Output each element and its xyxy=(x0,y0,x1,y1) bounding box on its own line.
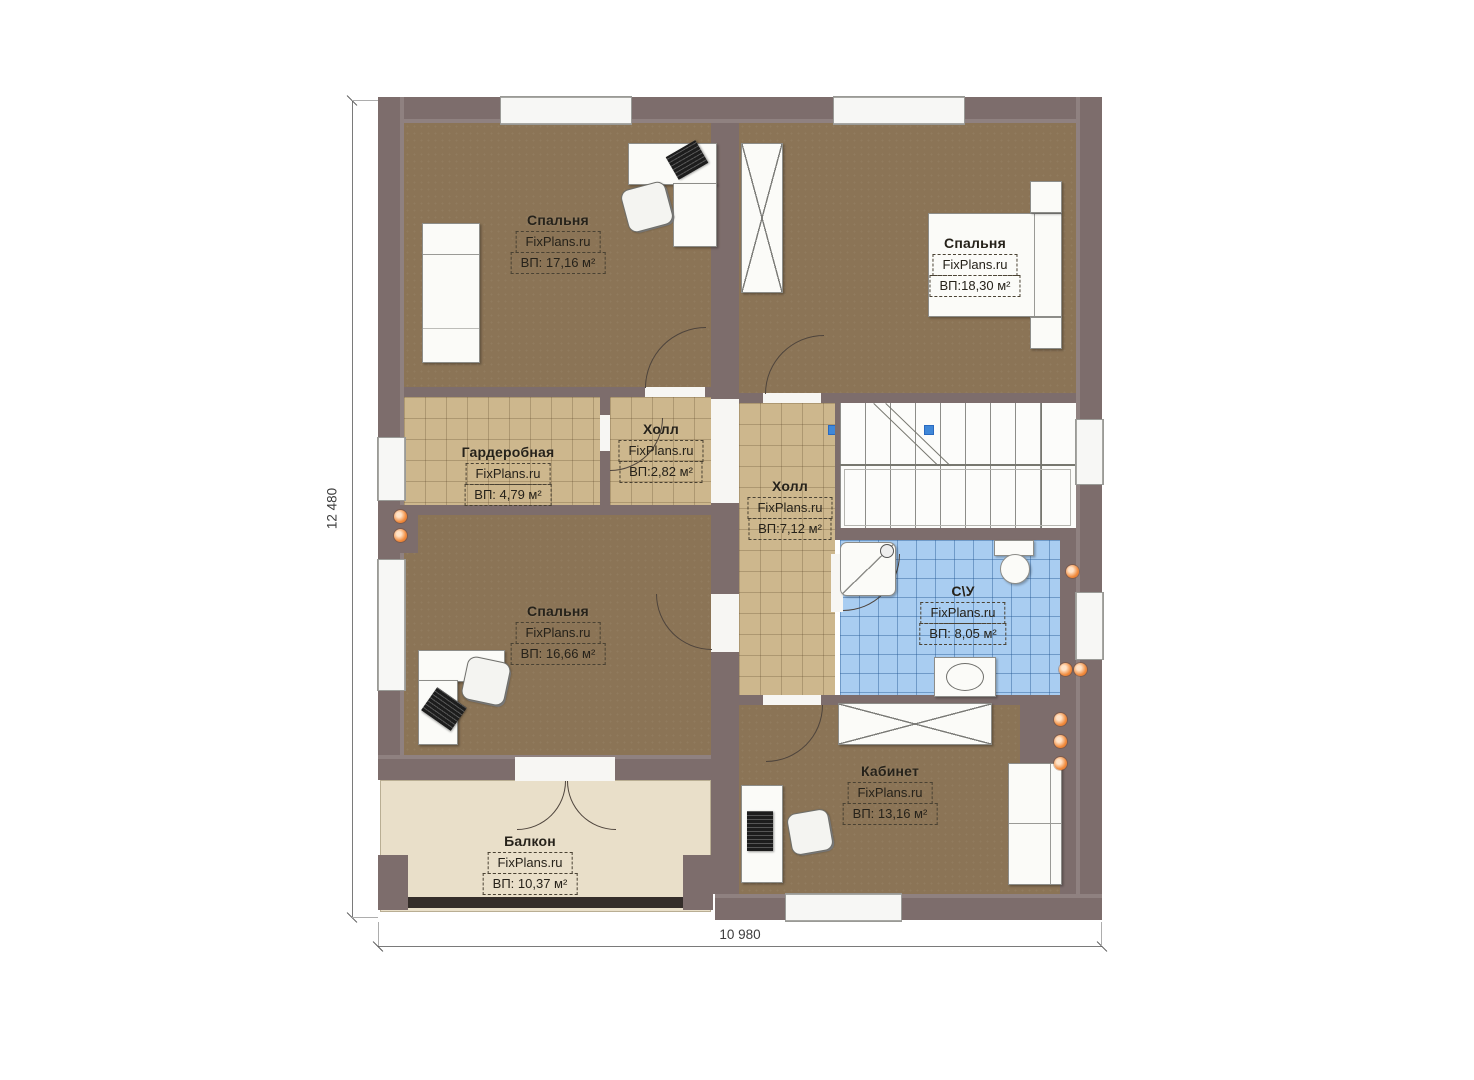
dimension-extension xyxy=(352,917,378,918)
room-site: FixPlans.ru xyxy=(920,602,1005,624)
room-name: Гардеробная xyxy=(462,444,555,460)
room-name: С\У xyxy=(951,583,974,599)
room-name: Холл xyxy=(643,421,679,437)
dimension-height-label: 12 480 xyxy=(325,469,340,549)
sofa xyxy=(1008,763,1062,885)
dimension-width-label: 10 980 xyxy=(675,927,805,942)
room-hall-center-floor xyxy=(739,403,835,695)
bed xyxy=(422,223,480,363)
radiator-dot xyxy=(1054,713,1067,726)
room-area: ВП: 10,37 м² xyxy=(483,873,578,895)
radiator-dot xyxy=(394,529,407,542)
radiator-dot xyxy=(394,510,407,523)
stair-outline xyxy=(844,469,1071,526)
stair-landing-line xyxy=(840,464,1076,466)
dimension-line-horizontal xyxy=(378,946,1102,947)
wall-interior xyxy=(835,528,1076,540)
room-label-hall-center: Холл FixPlans.ru ВП:7,12 м² xyxy=(747,478,832,540)
window xyxy=(1075,592,1104,660)
sofa-back-line xyxy=(1050,764,1051,884)
wall-interior xyxy=(835,403,840,528)
shower-head-icon xyxy=(880,544,894,558)
wall-exterior-bottom-right xyxy=(715,894,1102,920)
room-name: Кабинет xyxy=(861,763,919,779)
nightstand xyxy=(1030,317,1062,349)
door-opening xyxy=(645,387,705,397)
sink-counter xyxy=(934,657,996,697)
balcony-edge xyxy=(394,897,696,908)
radiator-dot xyxy=(1066,565,1079,578)
door-opening xyxy=(763,393,821,403)
wall-exterior-top xyxy=(378,97,1102,123)
room-label-balcony: Балкон FixPlans.ru ВП: 10,37 м² xyxy=(483,833,578,895)
toilet-bowl xyxy=(1000,554,1030,584)
room-label-bedroom-bottom-left: Спальня FixPlans.ru ВП: 16,66 м² xyxy=(511,603,606,665)
stair-marker xyxy=(924,425,934,435)
floor-plan: Спальня FixPlans.ru ВП: 17,16 м² Спальня… xyxy=(378,97,1102,920)
dimension-extension xyxy=(1101,922,1102,946)
wall-interior xyxy=(600,397,610,505)
radiator-dot xyxy=(1074,663,1087,676)
radiator-dot xyxy=(1059,663,1072,676)
room-label-hall-small: Холл FixPlans.ru ВП:2,82 м² xyxy=(618,421,703,483)
room-area: ВП:2,82 м² xyxy=(619,461,703,483)
window xyxy=(500,96,632,125)
room-name: Спальня xyxy=(527,603,589,619)
room-site: FixPlans.ru xyxy=(487,852,572,874)
opening-hall-passage xyxy=(711,399,739,503)
wardrobe xyxy=(741,143,783,293)
room-area: ВП: 13,16 м² xyxy=(843,803,938,825)
room-site: FixPlans.ru xyxy=(932,254,1017,276)
staircase xyxy=(840,403,1076,528)
room-area: ВП: 16,66 м² xyxy=(511,643,606,665)
room-name: Балкон xyxy=(504,833,556,849)
door-opening xyxy=(711,594,739,652)
wall-balcony-stub xyxy=(683,855,713,910)
room-label-bathroom: С\У FixPlans.ru ВП: 8,05 м² xyxy=(919,583,1006,645)
dimension-line-vertical xyxy=(352,100,353,918)
french-door-opening xyxy=(515,757,615,781)
floor-plan-page: Спальня FixPlans.ru ВП: 17,16 м² Спальня… xyxy=(0,0,1474,1080)
chair xyxy=(786,808,835,857)
room-name: Холл xyxy=(772,478,808,494)
dimension-extension xyxy=(352,100,378,101)
door-opening xyxy=(600,415,610,451)
room-site: FixPlans.ru xyxy=(847,782,932,804)
room-area: ВП:7,12 м² xyxy=(748,518,832,540)
room-site: FixPlans.ru xyxy=(618,440,703,462)
room-site: FixPlans.ru xyxy=(515,622,600,644)
wall-interior xyxy=(404,505,711,515)
desk xyxy=(673,183,717,247)
room-site: FixPlans.ru xyxy=(747,497,832,519)
wall-exterior-right xyxy=(1076,97,1102,920)
room-area: ВП: 8,05 м² xyxy=(919,623,1006,645)
sink-basin xyxy=(946,663,984,691)
nightstand xyxy=(1030,181,1062,213)
wall-balcony-stub xyxy=(378,855,408,910)
window xyxy=(833,96,965,125)
bed-pillow-line xyxy=(423,254,479,255)
room-label-bedroom-top-left: Спальня FixPlans.ru ВП: 17,16 м² xyxy=(511,212,606,274)
room-area: ВП: 4,79 м² xyxy=(464,484,551,506)
window xyxy=(785,893,902,922)
room-site: FixPlans.ru xyxy=(515,231,600,253)
laptop xyxy=(747,811,773,851)
dimension-extension xyxy=(378,922,379,946)
bed-fold-line xyxy=(423,328,479,329)
room-area: ВП:18,30 м² xyxy=(929,275,1020,297)
chair xyxy=(460,655,512,707)
radiator-dot xyxy=(1054,735,1067,748)
wardrobe xyxy=(838,703,992,745)
sofa-cushion-line xyxy=(1009,823,1061,824)
radiator-dot xyxy=(1054,757,1067,770)
room-label-office: Кабинет FixPlans.ru ВП: 13,16 м² xyxy=(843,763,938,825)
window xyxy=(377,437,406,501)
door-opening xyxy=(763,695,821,705)
room-label-bedroom-top-right: Спальня FixPlans.ru ВП:18,30 м² xyxy=(929,235,1020,297)
window xyxy=(377,559,406,691)
room-name: Спальня xyxy=(944,235,1006,251)
window xyxy=(1075,419,1104,485)
room-name: Спальня xyxy=(527,212,589,228)
room-area: ВП: 17,16 м² xyxy=(511,252,606,274)
room-site: FixPlans.ru xyxy=(465,463,550,485)
bed-pillow-line xyxy=(1034,214,1035,316)
room-label-wardrobe: Гардеробная FixPlans.ru ВП: 4,79 м² xyxy=(462,444,555,506)
